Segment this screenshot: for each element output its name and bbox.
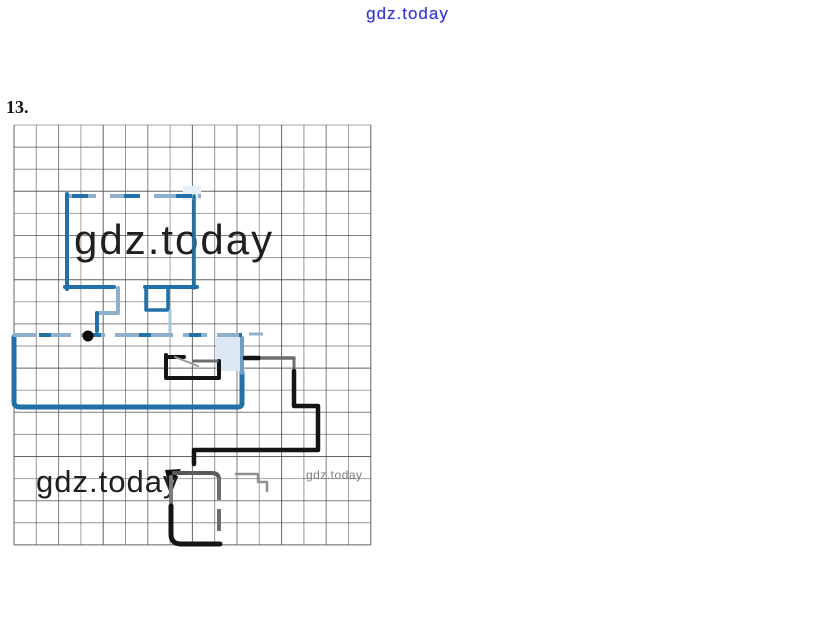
shapeE-top bbox=[174, 473, 219, 478]
watermark-large: gdz.today bbox=[74, 216, 274, 264]
rectA-notch bbox=[146, 289, 168, 310]
shapeC-diagonal bbox=[175, 357, 198, 366]
shapeC-bracket bbox=[166, 355, 219, 378]
watermark-bottom: gdz.today bbox=[36, 464, 179, 500]
watermark-small: gdz.today bbox=[306, 468, 363, 482]
connector-elbow-light bbox=[98, 288, 118, 313]
rectB-outline bbox=[14, 337, 242, 407]
pathD-black bbox=[194, 371, 318, 464]
shapeF-steps bbox=[236, 474, 267, 491]
figure-drawing bbox=[0, 0, 815, 642]
pale-fill-upper-corner bbox=[183, 186, 201, 200]
grid-paper bbox=[0, 0, 815, 642]
pale-fill-rect-top-right bbox=[216, 336, 242, 371]
path-start-dot bbox=[83, 331, 94, 342]
header-watermark: gdz.today bbox=[0, 4, 815, 24]
shapeE-black bbox=[171, 506, 220, 544]
problem-number: 13. bbox=[6, 97, 29, 118]
